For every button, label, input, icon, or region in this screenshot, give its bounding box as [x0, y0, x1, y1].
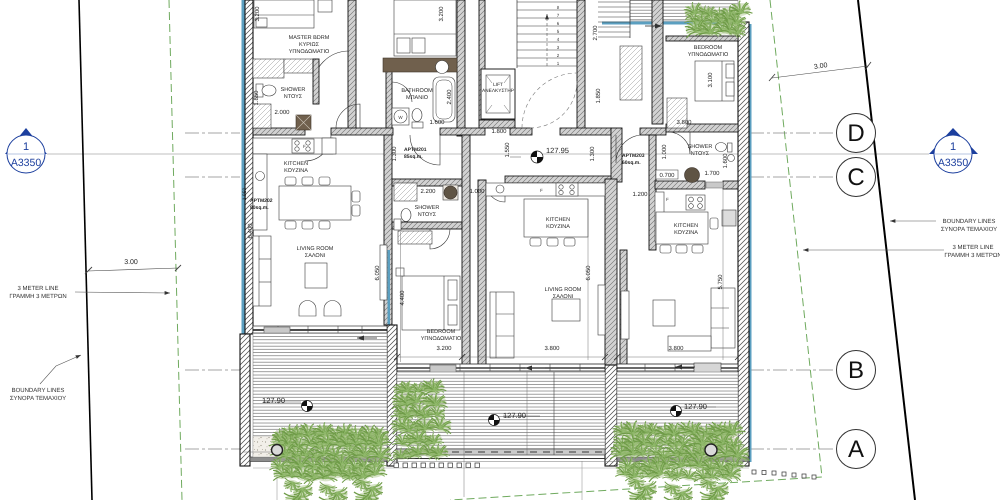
- svg-text:6.050: 6.050: [374, 265, 381, 281]
- svg-text:3.200: 3.200: [254, 6, 261, 22]
- svg-text:1.000: 1.000: [661, 144, 668, 160]
- svg-text:ΝΤΟΥΣ: ΝΤΟΥΣ: [418, 212, 437, 218]
- svg-text:6.400: 6.400: [247, 223, 254, 239]
- svg-text:APTM202: APTM202: [250, 198, 273, 204]
- svg-text:ΣΥΝΟΡΑ ΤΕΜΑΧΙΟΥ: ΣΥΝΟΡΑ ΤΕΜΑΧΙΟΥ: [10, 395, 66, 402]
- svg-text:1.550: 1.550: [504, 142, 511, 158]
- svg-text:ΣΑΛΟΝΙ: ΣΑΛΟΝΙ: [553, 294, 574, 300]
- svg-text:3.00: 3.00: [124, 259, 138, 266]
- svg-text:0.700: 0.700: [659, 172, 675, 179]
- svg-text:1.950: 1.950: [242, 188, 248, 201]
- svg-text:1: 1: [23, 141, 29, 153]
- svg-text:2.200: 2.200: [420, 188, 436, 195]
- svg-text:1.000: 1.000: [469, 188, 485, 195]
- svg-text:3.800: 3.800: [668, 345, 684, 352]
- svg-text:BEDROOM: BEDROOM: [694, 45, 723, 51]
- svg-text:ΜΠΑΝΙΟ: ΜΠΑΝΙΟ: [406, 95, 429, 101]
- svg-text:APTM203: APTM203: [622, 153, 645, 159]
- svg-text:SHOWER: SHOWER: [688, 144, 713, 150]
- svg-text:SHOWER: SHOWER: [281, 87, 306, 93]
- svg-text:A: A: [848, 436, 864, 463]
- svg-text:LIVING ROOM: LIVING ROOM: [297, 246, 334, 252]
- svg-text:127.90: 127.90: [262, 396, 285, 405]
- svg-text:ΚΟΥΖΙΝΑ: ΚΟΥΖΙΝΑ: [674, 230, 698, 236]
- svg-text:1.800: 1.800: [491, 128, 507, 135]
- svg-text:B: B: [848, 357, 864, 384]
- svg-text:2.000: 2.000: [274, 109, 290, 116]
- svg-text:LIVING ROOM: LIVING ROOM: [545, 287, 582, 293]
- svg-text:KITCHEN: KITCHEN: [284, 161, 308, 167]
- svg-text:ΚΟΥΖΙΝΑ: ΚΟΥΖΙΝΑ: [284, 168, 308, 174]
- svg-text:ΥΠΝΟΔΩΜΑΤΙΟ: ΥΠΝΟΔΩΜΑΤΙΟ: [289, 49, 330, 55]
- svg-text:3.800: 3.800: [676, 119, 692, 126]
- svg-text:3.200: 3.200: [438, 6, 445, 22]
- svg-text:1.300: 1.300: [391, 146, 398, 162]
- svg-text:2.400: 2.400: [446, 89, 453, 105]
- svg-text:ΓΡΑΜΜΗ 3 ΜΕΤΡΩΝ: ΓΡΑΜΜΗ 3 ΜΕΤΡΩΝ: [9, 293, 66, 300]
- svg-text:ΥΠΝΟΔΩΜΑΤΙΟ: ΥΠΝΟΔΩΜΑΤΙΟ: [421, 336, 462, 342]
- svg-text:A3350: A3350: [11, 157, 42, 169]
- svg-text:1.200: 1.200: [632, 191, 648, 198]
- svg-text:3.200: 3.200: [436, 345, 452, 352]
- svg-text:ΣΥΝΟΡΑ ΤΕΜΑΧΙΟΥ: ΣΥΝΟΡΑ ΤΕΜΑΧΙΟΥ: [941, 226, 997, 233]
- svg-text:KITCHEN: KITCHEN: [674, 223, 698, 229]
- svg-text:D: D: [847, 120, 864, 147]
- svg-text:BATHROOM: BATHROOM: [401, 88, 433, 94]
- svg-text:80sq.m.: 80sq.m.: [250, 205, 269, 211]
- svg-text:3.800: 3.800: [544, 345, 560, 352]
- svg-text:BOUNDARY LINES: BOUNDARY LINES: [12, 387, 65, 394]
- svg-text:1.850: 1.850: [253, 90, 260, 106]
- svg-text:ΣΑΛΟΝΙ: ΣΑΛΟΝΙ: [305, 253, 326, 259]
- svg-text:3.100: 3.100: [707, 72, 714, 88]
- svg-text:ΝΤΟΥΣ: ΝΤΟΥΣ: [284, 94, 303, 100]
- svg-text:C: C: [847, 164, 864, 191]
- svg-text:LIFT: LIFT: [493, 82, 503, 88]
- svg-text:1.600: 1.600: [429, 119, 445, 126]
- svg-text:2.700: 2.700: [592, 25, 599, 41]
- svg-text:5.750: 5.750: [717, 274, 724, 290]
- svg-text:APTM201: APTM201: [404, 147, 427, 153]
- svg-text:60sq.m.: 60sq.m.: [622, 160, 641, 166]
- svg-text:85sq.m.: 85sq.m.: [404, 154, 423, 160]
- svg-text:1.300: 1.300: [589, 146, 596, 162]
- svg-text:127.95: 127.95: [546, 146, 569, 155]
- svg-text:F: F: [666, 197, 669, 202]
- svg-text:1.700: 1.700: [704, 170, 720, 177]
- svg-text:ΚΟΥΖΙΝΑ: ΚΟΥΖΙΝΑ: [546, 224, 570, 230]
- svg-text:ΥΠΝΟΔΩΜΑΤΙΟ: ΥΠΝΟΔΩΜΑΤΙΟ: [688, 52, 729, 58]
- svg-text:4.400: 4.400: [399, 290, 406, 306]
- svg-text:1: 1: [950, 141, 956, 153]
- svg-text:127.90: 127.90: [503, 411, 526, 420]
- svg-text:ΚΥΡΙΩΣ: ΚΥΡΙΩΣ: [299, 42, 320, 48]
- svg-text:3 METER LINE: 3 METER LINE: [952, 244, 993, 251]
- svg-text:1.600: 1.600: [722, 153, 729, 169]
- svg-text:ΑΝΕΛΚΥΣΤΗΡ: ΑΝΕΛΚΥΣΤΗΡ: [482, 88, 514, 94]
- svg-text:MASTER BDRM: MASTER BDRM: [289, 35, 330, 41]
- svg-text:F: F: [540, 188, 543, 193]
- svg-text:ΝΤΟΥΣ: ΝΤΟΥΣ: [691, 151, 710, 157]
- svg-text:127.90: 127.90: [684, 402, 707, 411]
- svg-text:BOUNDARY LINES: BOUNDARY LINES: [943, 218, 996, 225]
- svg-text:KITCHEN: KITCHEN: [546, 217, 570, 223]
- svg-text:1.850: 1.850: [595, 88, 602, 104]
- svg-text:SHOWER: SHOWER: [415, 205, 440, 211]
- svg-text:F: F: [303, 144, 306, 149]
- svg-text:BEDROOM: BEDROOM: [427, 329, 456, 335]
- svg-text:A3350: A3350: [938, 157, 969, 169]
- svg-text:6.050: 6.050: [585, 265, 592, 281]
- svg-text:3 METER LINE: 3 METER LINE: [17, 285, 58, 292]
- svg-text:ΓΡΑΜΜΗ 3 ΜΕΤΡΩΝ: ΓΡΑΜΜΗ 3 ΜΕΤΡΩΝ: [944, 252, 1000, 259]
